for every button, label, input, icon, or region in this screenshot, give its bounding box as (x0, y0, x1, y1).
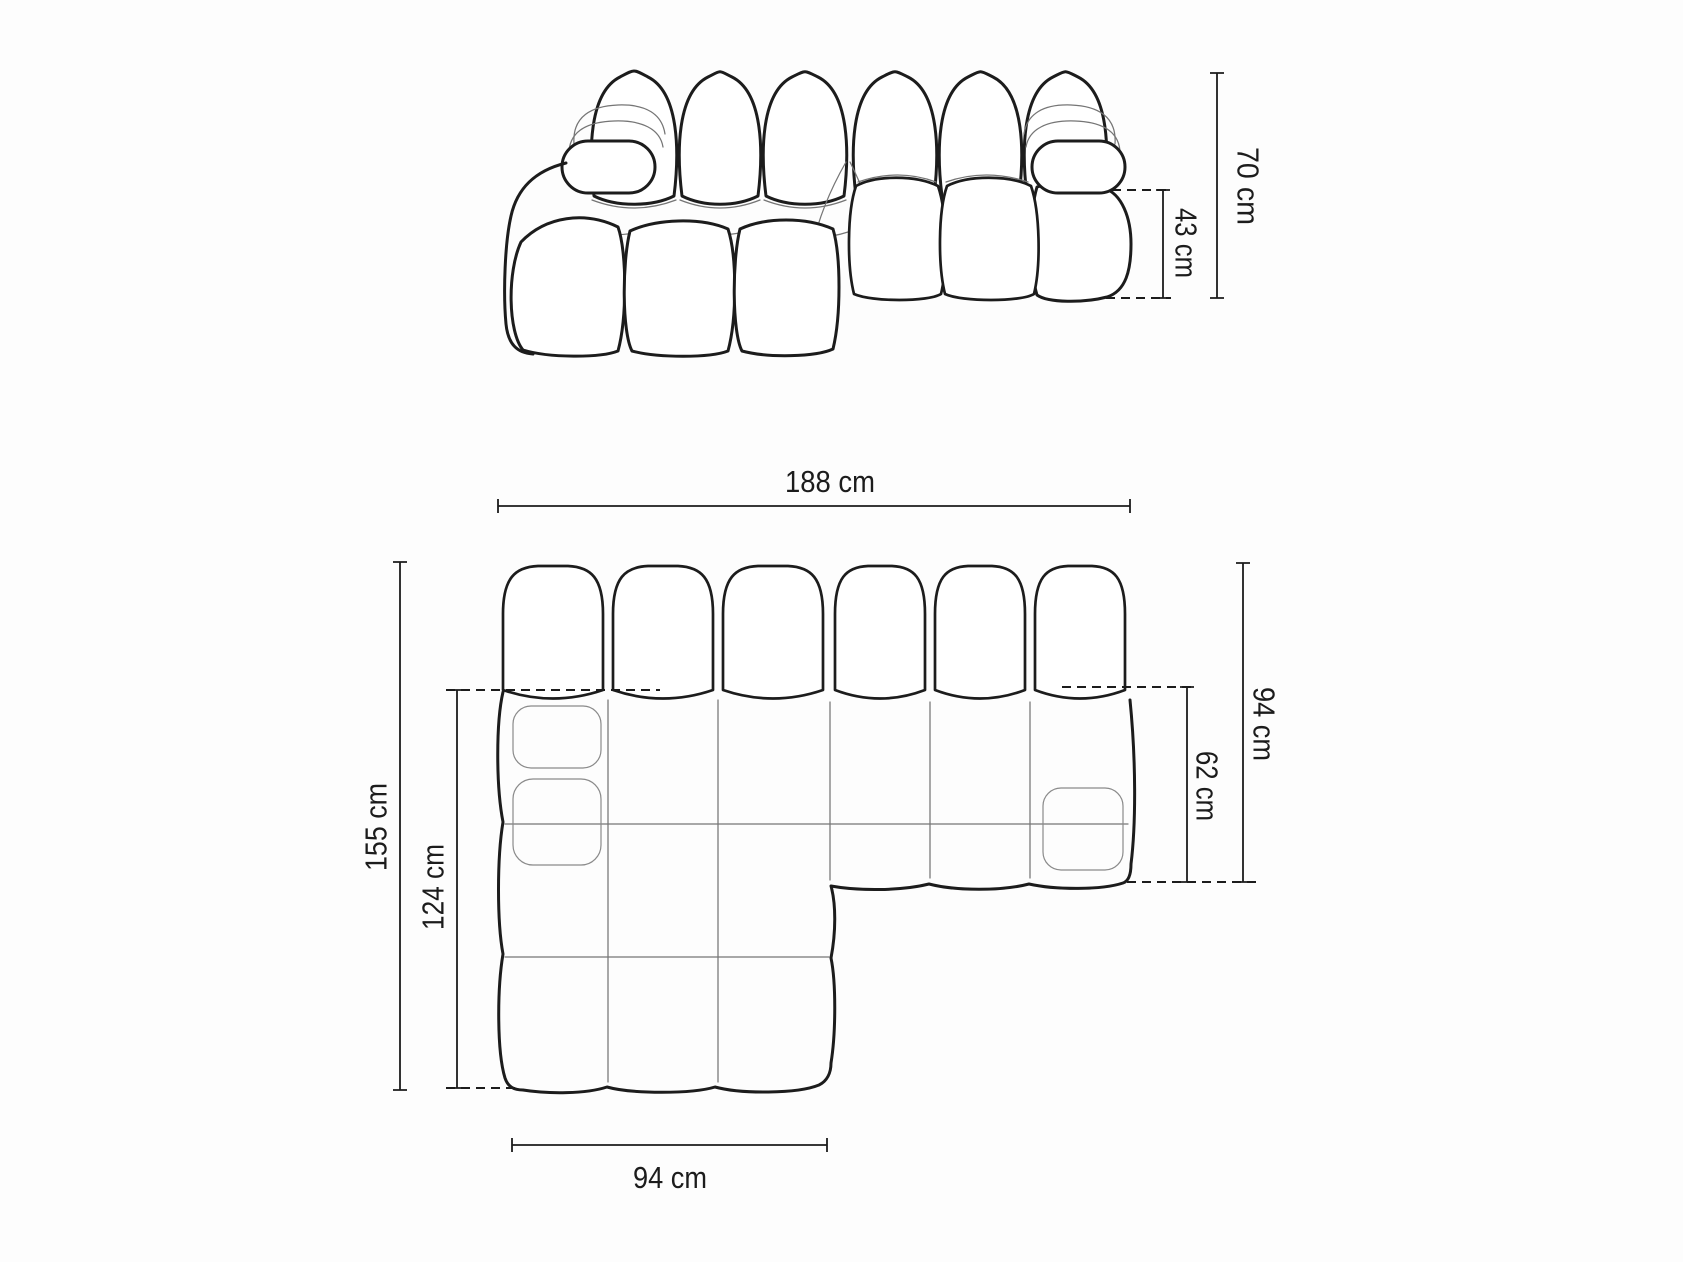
extension-dashed-line (446, 690, 660, 1088)
armrest-right (1032, 141, 1125, 193)
plan-seam (608, 700, 1030, 1082)
dimension-line-seat-height (1156, 190, 1170, 298)
plan-back-cushion (1035, 566, 1125, 699)
plan-back-cushion (723, 566, 823, 699)
plan-back-cushion (503, 566, 603, 699)
dimension-line-chaise-width (512, 1138, 827, 1152)
dimension-label-total-depth: 155 cm (359, 783, 394, 871)
extension-dashed-line (1062, 687, 1256, 882)
dimension-label-seat-height: 43 cm (1169, 208, 1204, 278)
dimension-line-chaise-inner-depth (450, 690, 464, 1088)
armrest-left (562, 141, 655, 193)
sofa-right-side (1031, 182, 1131, 301)
dimension-line-total-depth (393, 562, 407, 1090)
chaise-cushion (511, 218, 625, 356)
plan-back-cushion (835, 566, 925, 699)
chaise-cushion (624, 221, 735, 356)
diagram-canvas: 70 cm 43 cm 188 cm (0, 0, 1683, 1262)
plan-seam (505, 824, 1128, 957)
armrest-pad (513, 779, 601, 865)
seat-cushion (849, 178, 946, 300)
sofa-elevation-drawing (505, 71, 1131, 356)
seat-cushion (940, 178, 1039, 300)
armrest-pad (513, 706, 601, 768)
dimension-line-total-height (1210, 73, 1224, 298)
sofa-plan-drawing (498, 566, 1135, 1093)
dimension-label-chaise-width: 94 cm (633, 1160, 707, 1195)
plan-body-outline (498, 692, 1135, 1093)
chaise-cushion (734, 220, 839, 356)
elevation-view: 70 cm 43 cm (505, 71, 1266, 356)
plan-back-cushion (935, 566, 1025, 699)
back-cushion (679, 72, 760, 205)
dimension-label-total-height: 70 cm (1231, 147, 1266, 225)
plan-view: 188 cm 155 cm 124 cm 94 cm 62 cm 94 cm (359, 464, 1282, 1195)
dimension-label-seat-depth: 62 cm (1190, 751, 1225, 821)
dimension-label-total-width: 188 cm (785, 464, 875, 499)
dimension-line-total-width (498, 499, 1130, 513)
armrest-pad (1043, 788, 1123, 870)
plan-back-cushion (613, 566, 713, 699)
dimension-label-right-depth: 94 cm (1247, 687, 1282, 761)
dimension-label-chaise-inner-depth: 124 cm (416, 844, 451, 930)
sofa-dimension-diagram: 70 cm 43 cm 188 cm (0, 0, 1683, 1262)
